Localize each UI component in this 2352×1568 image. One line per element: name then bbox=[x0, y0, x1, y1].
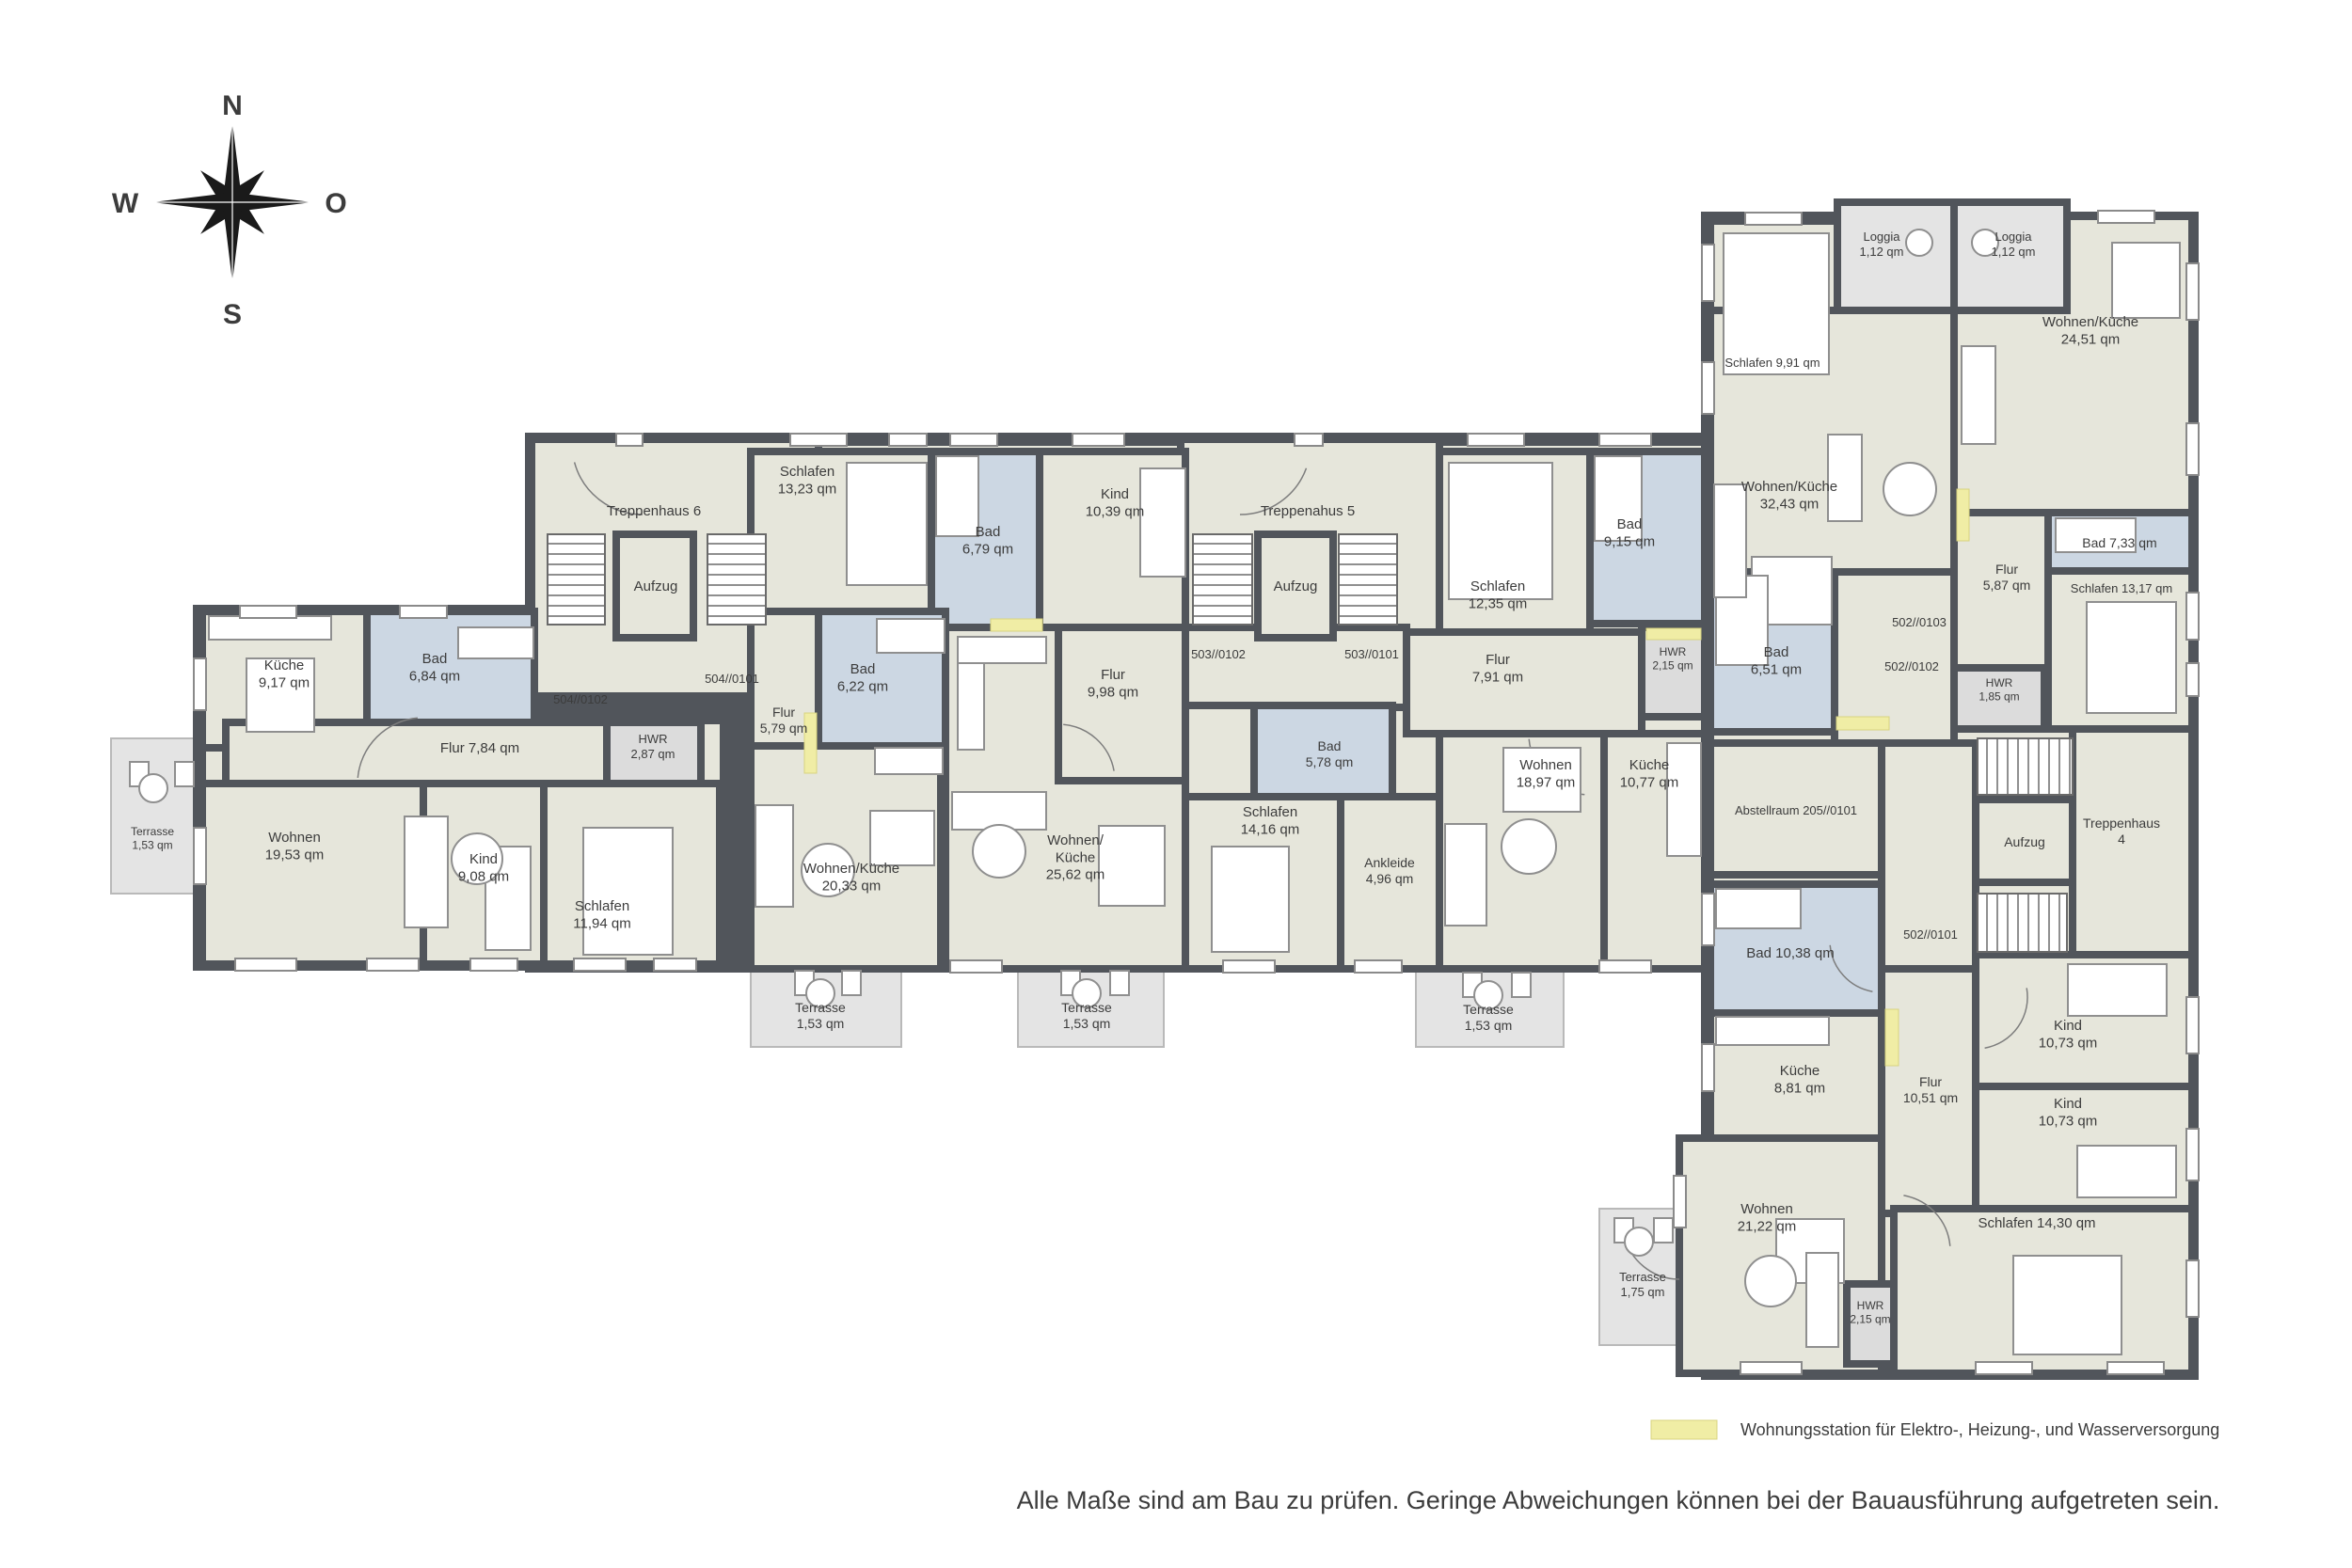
label-terrasse-1: Terrasse bbox=[795, 1000, 846, 1015]
furniture bbox=[1724, 233, 1829, 374]
label-hwr-215-sued: HWR bbox=[1857, 1299, 1884, 1312]
label-wohnen-1897: Wohnen bbox=[1519, 757, 1572, 773]
label-terrasse-2: Terrasse bbox=[1061, 1000, 1112, 1015]
furniture bbox=[936, 456, 978, 536]
label-wk-2562: Küche bbox=[1056, 849, 1096, 865]
stairs-5 bbox=[1978, 894, 2067, 952]
wohnungsstation-marker-5 bbox=[1885, 1009, 1899, 1066]
label-wohnen-1953: 19,53 qm bbox=[265, 847, 325, 863]
label-ankleide-496: Ankleide bbox=[1364, 855, 1415, 870]
furniture bbox=[1962, 346, 1995, 444]
floor-plan: Treppenhaus 6Treppenahus 5Küche9,17 qmBa… bbox=[0, 0, 2352, 1568]
label-bad-578: Bad bbox=[1318, 738, 1342, 753]
window bbox=[1745, 213, 1802, 225]
label-flur-791: 7,91 qm bbox=[1472, 669, 1523, 685]
furniture bbox=[1110, 971, 1129, 995]
window bbox=[2186, 1260, 2199, 1317]
label-wk-2033: 20,33 qm bbox=[822, 878, 882, 894]
label-schlafen-1317: Schlafen 13,17 qm bbox=[2071, 581, 2172, 595]
label-flur-579: 5,79 qm bbox=[760, 721, 808, 736]
label-aufzug-2: Aufzug bbox=[1274, 578, 1318, 594]
label-schlafen-1323: Schlafen bbox=[780, 464, 834, 480]
furniture bbox=[1654, 1218, 1673, 1243]
furniture bbox=[209, 616, 331, 640]
furniture bbox=[870, 811, 934, 865]
floorplan-page: Treppenhaus 6Treppenahus 5Küche9,17 qmBa… bbox=[0, 0, 2352, 1568]
label-loggia-2: 1,12 qm bbox=[1992, 245, 2036, 259]
label-loggia-1: 1,12 qm bbox=[1860, 245, 1904, 259]
window bbox=[1702, 1044, 1714, 1091]
furniture bbox=[2077, 1146, 2176, 1197]
plan-layer: Treppenhaus 6Treppenahus 5Küche9,17 qmBa… bbox=[111, 202, 2199, 1374]
furniture bbox=[1716, 1017, 1829, 1045]
window bbox=[1295, 434, 1323, 446]
furniture bbox=[1502, 819, 1556, 874]
room-flur-998 bbox=[1058, 627, 1185, 781]
label-kueche-1077: 10,77 qm bbox=[1620, 774, 1679, 790]
label-bad-679: Bad bbox=[976, 524, 1001, 540]
stairs-2 bbox=[1193, 534, 1252, 625]
furniture bbox=[958, 637, 1046, 663]
label-aufzug-1: Aufzug bbox=[634, 578, 678, 594]
furniture bbox=[755, 805, 793, 907]
window bbox=[1674, 1176, 1686, 1227]
window bbox=[1702, 362, 1714, 414]
window bbox=[400, 606, 447, 618]
room-wohnen-1953 bbox=[202, 784, 423, 964]
window bbox=[1355, 960, 1402, 973]
wohnungsstation-marker-0 bbox=[991, 619, 1042, 631]
furniture bbox=[1667, 743, 1701, 856]
label-wk-2562: 25,62 qm bbox=[1046, 867, 1105, 883]
label-flur-587: Flur bbox=[1995, 562, 2018, 577]
window bbox=[194, 658, 206, 710]
window bbox=[235, 958, 296, 971]
window bbox=[889, 434, 927, 446]
window bbox=[654, 958, 696, 971]
window bbox=[1073, 434, 1124, 446]
window bbox=[790, 434, 847, 446]
stairs-4 bbox=[1978, 738, 2073, 795]
furniture bbox=[2068, 964, 2167, 1016]
furniture bbox=[877, 619, 945, 653]
window bbox=[2186, 1129, 2199, 1180]
furniture bbox=[458, 627, 533, 658]
label-bad-1038: Bad 10,38 qm bbox=[1746, 945, 1834, 961]
wall-patch-0 bbox=[720, 691, 751, 969]
furniture bbox=[1906, 230, 1932, 256]
label-loggia-1: Loggia bbox=[1863, 230, 1900, 244]
label-aufzug-3: Aufzug bbox=[2004, 834, 2045, 849]
furniture bbox=[1212, 847, 1289, 952]
window bbox=[1599, 960, 1651, 973]
furniture bbox=[1828, 435, 1862, 521]
label-bad-622: 6,22 qm bbox=[837, 678, 888, 694]
label-kueche-881: Küche bbox=[1780, 1063, 1820, 1079]
legend-color-swatch bbox=[1651, 1420, 1717, 1439]
label-wohnen-1897: 18,97 qm bbox=[1517, 774, 1576, 790]
label-wk-2562: Wohnen/ bbox=[1047, 832, 1104, 848]
stairs-0 bbox=[548, 534, 605, 625]
legend-label: Wohnungsstation für Elektro-, Heizung-, … bbox=[1740, 1420, 2219, 1439]
label-bad-684: 6,84 qm bbox=[409, 668, 460, 684]
label-treppenhaus-4: 4 bbox=[2118, 832, 2125, 847]
furniture bbox=[1806, 1253, 1838, 1347]
label-kind-1039: Kind bbox=[1101, 486, 1129, 502]
room-treppenhaus-4 bbox=[2073, 729, 2192, 957]
label-kind-1073-b: Kind bbox=[2054, 1096, 2082, 1112]
label-terrasse-3: Terrasse bbox=[1463, 1002, 1514, 1017]
legend: Wohnungsstation für Elektro-, Heizung-, … bbox=[1651, 1420, 2219, 1439]
furniture bbox=[847, 463, 927, 585]
label-kind-1039: 10,39 qm bbox=[1086, 503, 1145, 519]
label-terrasse-4: 1,75 qm bbox=[1621, 1285, 1665, 1299]
label-terrasse-west: 1,53 qm bbox=[132, 839, 172, 852]
window bbox=[2186, 997, 2199, 1053]
label-loggia-2: Loggia bbox=[1994, 230, 2032, 244]
label-kueche-881: 8,81 qm bbox=[1774, 1080, 1825, 1096]
label-schlafen-991: Schlafen 9,91 qm bbox=[1724, 356, 1820, 370]
compass-south-label: S bbox=[223, 299, 242, 330]
label-hwr-287: HWR bbox=[638, 732, 667, 746]
label-kind-1073-a: Kind bbox=[2054, 1018, 2082, 1034]
label-bad-651: 6,51 qm bbox=[1751, 661, 1802, 677]
window bbox=[616, 434, 643, 446]
window bbox=[2186, 593, 2199, 640]
label-ankleide-496: 4,96 qm bbox=[1366, 871, 1414, 886]
compass-north-label: N bbox=[222, 90, 243, 121]
label-terrasse-2: 1,53 qm bbox=[1063, 1016, 1111, 1031]
window bbox=[194, 828, 206, 884]
label-kueche-917: 9,17 qm bbox=[259, 674, 310, 690]
label-bad-733: Bad 7,33 qm bbox=[2082, 535, 2156, 550]
label-flur-579: Flur bbox=[772, 705, 795, 720]
stairs-3 bbox=[1339, 534, 1397, 625]
label-kueche-917: Küche bbox=[264, 657, 305, 673]
label-flur-998: Flur bbox=[1101, 667, 1125, 683]
furniture bbox=[1099, 826, 1165, 906]
label-bad-915: Bad bbox=[1617, 516, 1643, 532]
apartment-number-504-0101: 504//0101 bbox=[705, 672, 759, 686]
label-wohnen-2122: Wohnen bbox=[1740, 1201, 1793, 1217]
stairs-1 bbox=[707, 534, 766, 625]
furniture bbox=[875, 748, 943, 774]
furniture bbox=[583, 828, 673, 955]
window bbox=[1468, 434, 1524, 446]
label-wohnen-1953: Wohnen bbox=[268, 830, 321, 846]
furniture bbox=[2087, 602, 2176, 713]
label-schlafen-1194: Schlafen bbox=[575, 898, 629, 914]
furniture bbox=[1745, 1256, 1796, 1307]
label-hwr-215-sued: 2,15 qm bbox=[1850, 1313, 1890, 1326]
label-schlafen-1416: 14,16 qm bbox=[1241, 821, 1300, 837]
window bbox=[470, 958, 517, 971]
window bbox=[367, 958, 419, 971]
label-hwr-215-mitte: HWR bbox=[1660, 645, 1687, 658]
label-bad-684: Bad bbox=[422, 651, 448, 667]
window bbox=[1702, 894, 1714, 945]
label-wk-3243: Wohnen/Küche bbox=[1741, 479, 1837, 495]
apartment-number-503-0102: 503//0102 bbox=[1191, 647, 1246, 661]
label-schlafen-1323: 13,23 qm bbox=[778, 481, 837, 497]
label-bad-622: Bad bbox=[850, 661, 876, 677]
apartment-number-502-0102: 502//0102 bbox=[1884, 659, 1939, 673]
window bbox=[2107, 1362, 2164, 1374]
label-wk-2451: Wohnen/Küche bbox=[2042, 314, 2138, 330]
label-hwr-215-mitte: 2,15 qm bbox=[1652, 659, 1692, 673]
label-wohnen-2122: 21,22 qm bbox=[1738, 1218, 1797, 1234]
label-schlafen-1235: 12,35 qm bbox=[1469, 595, 1528, 611]
window bbox=[1740, 1362, 1802, 1374]
label-schlafen-1235: Schlafen bbox=[1470, 578, 1525, 594]
label-bad-915: 9,15 qm bbox=[1604, 533, 1655, 549]
label-terrasse-3: 1,53 qm bbox=[1465, 1018, 1513, 1033]
window bbox=[950, 960, 1002, 973]
label-schlafen-1194: 11,94 qm bbox=[573, 915, 630, 931]
wohnungsstation-marker-3 bbox=[1957, 489, 1969, 541]
furniture bbox=[1445, 824, 1486, 926]
label-abstellraum: Abstellraum 205//0101 bbox=[1735, 803, 1857, 817]
disclaimer-text: Alle Maße sind am Bau zu prüfen. Geringe… bbox=[1017, 1486, 2220, 1514]
window bbox=[1976, 1362, 2032, 1374]
label-flur-791: Flur bbox=[1486, 652, 1510, 668]
window bbox=[2186, 663, 2199, 696]
furniture bbox=[1625, 1227, 1653, 1256]
label-schlafen-1430: Schlafen 14,30 qm bbox=[1978, 1215, 2095, 1231]
window bbox=[2098, 211, 2154, 223]
furniture bbox=[2112, 243, 2180, 318]
room-flur-791 bbox=[1406, 632, 1642, 734]
apartment-number-502-0101: 502//0101 bbox=[1903, 927, 1958, 942]
furniture bbox=[973, 825, 1025, 878]
label-flur-1051: 10,51 qm bbox=[1903, 1090, 1958, 1105]
furniture bbox=[1883, 463, 1936, 515]
furniture bbox=[175, 762, 194, 786]
label-kueche-1077: Küche bbox=[1629, 757, 1670, 773]
label-bad-578: 5,78 qm bbox=[1306, 754, 1354, 769]
window bbox=[1702, 245, 1714, 301]
apartment-number-503-0101: 503//0101 bbox=[1344, 647, 1399, 661]
furniture bbox=[1140, 468, 1185, 577]
window bbox=[2186, 423, 2199, 475]
label-hwr-185: HWR bbox=[1986, 676, 2013, 689]
furniture bbox=[958, 663, 984, 750]
furniture bbox=[139, 774, 167, 802]
label-kind-1073-a: 10,73 qm bbox=[2039, 1035, 2098, 1051]
label-treppenhaus-6: Treppenhaus 6 bbox=[607, 503, 701, 519]
label-kind-908: 9,08 qm bbox=[458, 868, 509, 884]
label-hwr-287: 2,87 qm bbox=[631, 747, 675, 761]
window bbox=[1223, 960, 1275, 973]
label-flur-998: 9,98 qm bbox=[1088, 684, 1138, 700]
label-flur-784: Flur 7,84 qm bbox=[440, 740, 519, 756]
apartment-number-504-0102: 504//0102 bbox=[553, 692, 608, 706]
furniture bbox=[1714, 484, 1746, 597]
label-wk-3243: 32,43 qm bbox=[1760, 496, 1820, 512]
wohnungsstation-marker-2 bbox=[1646, 628, 1701, 640]
label-treppenhaus-5: Treppenahus 5 bbox=[1261, 503, 1355, 519]
label-kind-908: Kind bbox=[469, 851, 498, 867]
window bbox=[950, 434, 997, 446]
label-terrasse-4: Terrasse bbox=[1619, 1270, 1666, 1284]
window bbox=[2186, 263, 2199, 320]
room-corr-b bbox=[1181, 705, 1254, 800]
label-schlafen-1416: Schlafen bbox=[1243, 804, 1297, 820]
label-hwr-185: 1,85 qm bbox=[1979, 690, 2019, 704]
label-terrasse-west: Terrasse bbox=[131, 825, 174, 838]
label-wk-2451: 24,51 qm bbox=[2061, 331, 2121, 347]
window bbox=[574, 958, 626, 971]
apartment-number-502-0103: 502//0103 bbox=[1892, 615, 1947, 629]
compass-rose: N W O S bbox=[112, 90, 347, 330]
furniture bbox=[1512, 973, 1531, 997]
furniture bbox=[842, 971, 861, 995]
compass-east-label: O bbox=[325, 188, 346, 219]
label-flur-1051: Flur bbox=[1919, 1074, 1942, 1089]
furniture bbox=[2013, 1256, 2122, 1354]
wohnungsstation-marker-4 bbox=[1836, 717, 1889, 730]
label-flur-587: 5,87 qm bbox=[1983, 578, 2031, 593]
label-wk-2033: Wohnen/Küche bbox=[803, 861, 899, 877]
window bbox=[1599, 434, 1651, 446]
label-kind-1073-b: 10,73 qm bbox=[2039, 1113, 2098, 1129]
label-treppenhaus-4: Treppenhaus bbox=[2083, 816, 2160, 831]
furniture bbox=[405, 816, 448, 927]
label-bad-651: Bad bbox=[1764, 644, 1789, 660]
label-bad-679: 6,79 qm bbox=[962, 541, 1013, 557]
furniture bbox=[1716, 889, 1801, 928]
compass-west-label: W bbox=[112, 188, 139, 219]
window bbox=[240, 606, 296, 618]
label-terrasse-1: 1,53 qm bbox=[797, 1016, 845, 1031]
